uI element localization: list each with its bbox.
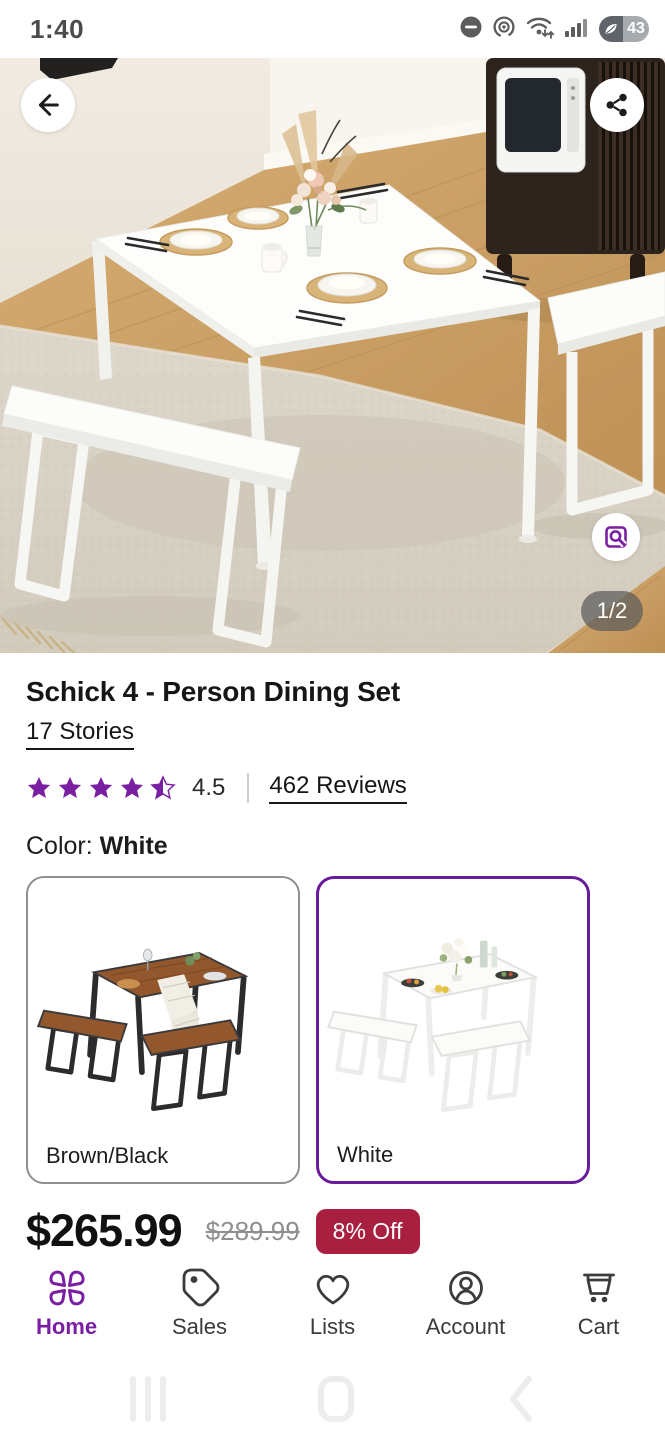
image-search-button[interactable] [592,513,640,561]
original-price: $289.99 [206,1216,300,1247]
product-image-carousel[interactable]: 1/2 [0,58,665,653]
nav-label: Cart [578,1314,620,1340]
home-logo-icon [45,1266,89,1310]
screen-record-icon [492,15,516,44]
status-icons: 43 [459,14,649,45]
nav-label: Lists [310,1314,355,1340]
current-price: $265.99 [26,1205,182,1257]
star-icon [88,775,114,801]
share-icon [602,90,632,120]
nav-label: Sales [172,1314,227,1340]
account-icon [444,1266,488,1310]
divider [247,773,249,803]
back-gesture-button[interactable] [505,1373,535,1425]
color-option-white[interactable]: White [316,876,590,1184]
selected-color: White [100,832,168,860]
do-not-disturb-icon [459,15,483,44]
signal-icon [564,15,590,44]
star-icon [57,775,83,801]
color-label: Color: [26,832,93,860]
nav-item-sales[interactable]: Sales [133,1260,266,1358]
back-arrow-icon [31,88,65,122]
option-label: Brown/Black [46,1143,168,1169]
nav-item-lists[interactable]: Lists [266,1260,399,1358]
star-icon [119,775,145,801]
share-button[interactable] [590,78,644,132]
battery-percent: 43 [623,16,649,42]
brand-link[interactable]: 17 Stories [26,718,134,750]
reviews-link[interactable]: 462 Reviews [269,772,406,804]
page-title: Schick 4 - Person Dining Set [26,675,639,709]
nav-label: Home [36,1314,97,1340]
color-line: Color: White [26,832,639,861]
price-row: $265.99 $289.99 8% Off [26,1205,639,1257]
nav-item-account[interactable]: Account [399,1260,532,1358]
nav-item-cart[interactable]: Cart [532,1260,665,1358]
recents-button[interactable] [130,1376,166,1422]
nav-item-home[interactable]: Home [0,1260,133,1358]
bottom-navigation: Home Sales Lists Account Cart [0,1260,665,1358]
page-indicator: 1/2 [581,591,643,631]
battery-saver-icon: 43 [599,16,649,42]
tag-icon [178,1266,222,1310]
product-details: Schick 4 - Person Dining Set 17 Stories … [0,653,665,1257]
back-button[interactable] [21,78,75,132]
rating-row[interactable]: 4.5 462 Reviews [26,772,639,804]
star-rating [26,775,176,801]
product-photo [0,58,665,653]
clock: 1:40 [30,14,84,45]
star-icon [26,775,52,801]
android-navigation-bar [0,1358,665,1440]
half-star-icon [150,775,176,801]
status-bar: 1:40 [0,0,665,58]
heart-icon [311,1266,355,1310]
white-thumbnail [323,885,585,1125]
nav-label: Account [426,1314,506,1340]
wifi-icon [525,14,555,45]
home-button[interactable] [318,1376,354,1422]
rating-value: 4.5 [192,774,225,802]
brown-black-thumbnail [32,884,296,1124]
color-option-brown-black[interactable]: Brown/Black [26,876,300,1184]
discount-badge: 8% Off [316,1209,420,1254]
cart-icon [577,1266,621,1310]
image-search-icon [602,523,630,551]
option-label: White [337,1142,393,1168]
color-options: Brown/Black [26,876,639,1184]
